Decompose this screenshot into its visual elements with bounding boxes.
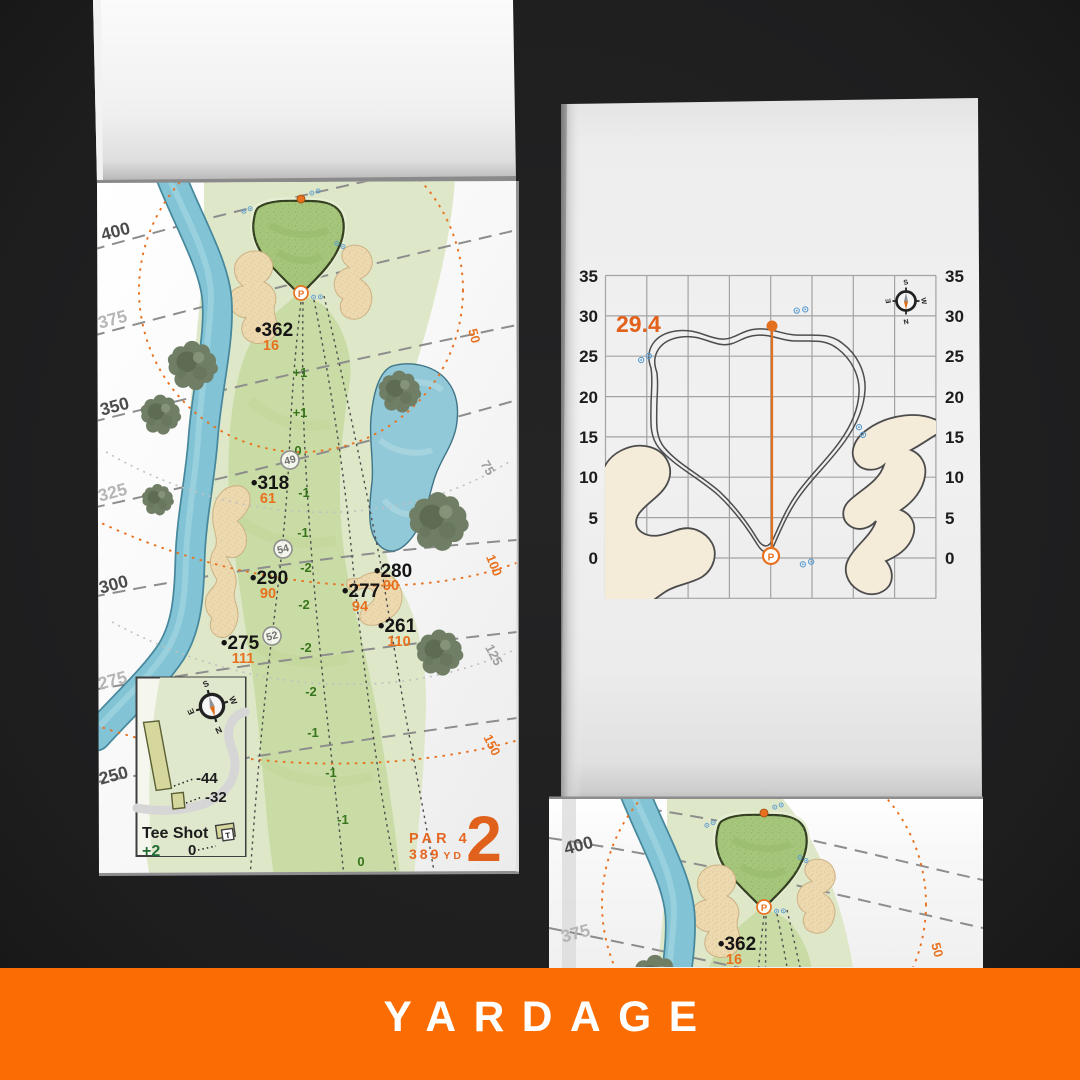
svg-text:15: 15 <box>945 428 964 447</box>
svg-text:35: 35 <box>945 267 964 286</box>
svg-text:20: 20 <box>579 388 598 407</box>
svg-text:25: 25 <box>579 347 598 366</box>
svg-text:0: 0 <box>589 549 598 568</box>
svg-text:29.4: 29.4 <box>616 311 661 337</box>
svg-text:30: 30 <box>579 307 598 326</box>
svg-text:20: 20 <box>945 388 964 407</box>
svg-text:5: 5 <box>589 509 598 528</box>
svg-text:YARDAGE: YARDAGE <box>383 994 714 1041</box>
svg-text:5: 5 <box>945 509 954 528</box>
svg-text:15: 15 <box>579 428 598 447</box>
svg-text:35: 35 <box>579 267 598 286</box>
svg-text:10: 10 <box>579 468 598 487</box>
svg-text:P: P <box>768 553 775 564</box>
svg-text:30: 30 <box>945 307 964 326</box>
svg-text:10: 10 <box>945 468 964 487</box>
svg-text:0: 0 <box>945 549 954 568</box>
svg-text:25: 25 <box>945 347 964 366</box>
